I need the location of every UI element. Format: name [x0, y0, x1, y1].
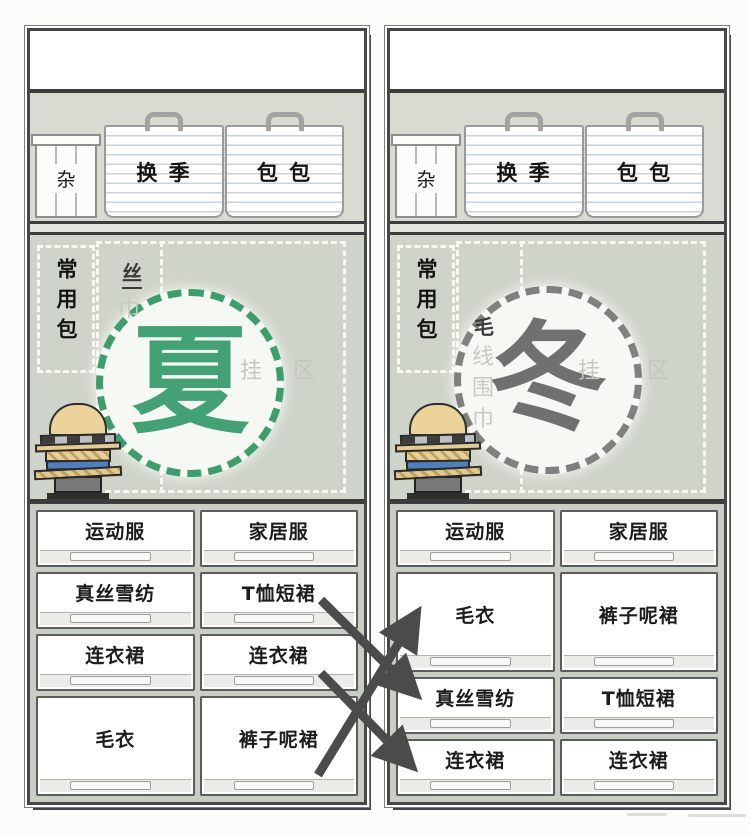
box-label: 杂 [54, 164, 77, 193]
drawer-label: 连衣裙 [445, 746, 505, 773]
drawer: 裤子呢裙 [200, 696, 359, 796]
drawer: 真丝雪纺 [396, 677, 555, 734]
top-compartment [30, 31, 364, 93]
box-lid-icon [31, 134, 101, 146]
drawer-handle [234, 552, 314, 561]
bags-zone: 常用包 [37, 245, 95, 373]
drawer-label: T恤短裙 [602, 684, 676, 711]
drawer: 连衣裙 [560, 739, 719, 796]
box-handle-icon [266, 112, 304, 131]
drawer: T恤短裙 [560, 677, 719, 734]
hat-stack [393, 403, 483, 499]
drawer-handle [594, 719, 674, 728]
drawer-handle [70, 781, 150, 790]
shelf-plank [390, 221, 724, 235]
box-label: 换 季 [496, 157, 551, 187]
storage-box: 包 包 [225, 125, 344, 218]
drawer-label: 运动服 [85, 517, 145, 544]
drawer: 家居服 [200, 510, 359, 567]
drawer-label: 裤子呢裙 [239, 725, 319, 752]
drawer-handle [430, 781, 510, 790]
scarf-zone-label-top: 丝 [122, 257, 142, 289]
scarf-zone-char: 巾 [118, 299, 140, 321]
drawer-handle [594, 781, 674, 790]
drawer-handle [234, 614, 314, 623]
hat-stack [33, 403, 123, 499]
drawer-handle [430, 552, 510, 561]
drawer-row: 运动服家居服 [36, 510, 358, 567]
drawer: 裤子呢裙 [560, 572, 719, 672]
misc-box: 杂 [395, 138, 457, 218]
box-handle-icon [626, 112, 664, 131]
drawer: 毛衣 [396, 572, 555, 672]
hanging-zone-label: 挂 区 [578, 353, 689, 385]
drawer-row: 运动服家居服 [396, 510, 718, 567]
drawer-label: 连衣裙 [609, 746, 669, 773]
storage-box: 包 包 [585, 125, 704, 218]
storage-box: 换 季 [104, 125, 224, 218]
bags-zone-label: 常用包 [411, 258, 441, 370]
drawer-label: 连衣裙 [249, 641, 309, 668]
drawer-label: 毛衣 [95, 725, 135, 752]
drawer-handle [70, 552, 150, 561]
drawer-row: 真丝雪纺T恤短裙 [36, 572, 358, 629]
box-label: 杂 [414, 164, 437, 193]
box-label: 包 包 [617, 157, 672, 187]
drawer-label: 真丝雪纺 [75, 579, 155, 606]
scarf-zone-label-top: 毛 [474, 311, 494, 340]
drawer: 家居服 [560, 510, 719, 567]
drawer-label: 裤子呢裙 [599, 601, 679, 628]
scarf-zone-char: 线 [472, 347, 494, 369]
drawer-section: 运动服家居服真丝雪纺T恤短裙连衣裙连衣裙毛衣裤子呢裙 [30, 499, 364, 802]
drawer-label: 家居服 [249, 517, 309, 544]
hanging-area: 常用包 丝 巾 挂 区 夏 [30, 235, 364, 499]
drawer-section: 运动服家居服毛衣裤子呢裙真丝雪纺T恤短裙连衣裙连衣裙 [390, 499, 724, 802]
drawer-handle [594, 657, 674, 666]
drawer-handle [234, 781, 314, 790]
box-label: 换 季 [136, 157, 191, 187]
watermark-dash [627, 813, 667, 816]
hat-foot-icon [407, 493, 469, 499]
hat-dome-icon [49, 403, 107, 436]
drawer-row: 毛衣裤子呢裙 [396, 572, 718, 672]
drawer-label: T恤短裙 [242, 579, 316, 606]
closet-summer: 杂换 季包 包 常用包 丝 巾 挂 区 夏 运动服家居服真丝雪纺T恤短裙连衣裙连… [27, 28, 367, 805]
shelf-plank [30, 221, 364, 235]
bags-zone: 常用包 [397, 245, 455, 373]
drawer-label: 运动服 [445, 517, 505, 544]
season-char-summer: 夏 [131, 322, 249, 440]
drawer: 毛衣 [36, 696, 195, 796]
drawer-row: 毛衣裤子呢裙 [36, 696, 358, 796]
drawer-handle [234, 676, 314, 685]
drawer: 真丝雪纺 [36, 572, 195, 629]
drawer-label: 连衣裙 [85, 641, 145, 668]
hanging-area: 常用包 毛 线围巾 挂 区 冬 [390, 235, 724, 499]
scarf-zone-char: 围 [472, 378, 494, 400]
drawer-row: 连衣裙连衣裙 [36, 634, 358, 691]
box-lid-icon [391, 134, 461, 146]
drawer-row: 真丝雪纺T恤短裙 [396, 677, 718, 734]
hat-foot-icon [47, 493, 109, 499]
misc-box: 杂 [35, 138, 97, 218]
bags-zone-label: 常用包 [51, 258, 81, 370]
hat-dome-icon [409, 403, 467, 436]
top-compartment [390, 31, 724, 93]
drawer-label: 真丝雪纺 [435, 684, 515, 711]
storage-box: 换 季 [464, 125, 584, 218]
drawer-handle [70, 614, 150, 623]
box-handle-icon [505, 112, 543, 131]
drawer-label: 家居服 [609, 517, 669, 544]
drawer: T恤短裙 [200, 572, 359, 629]
drawer-handle [70, 676, 150, 685]
drawer-label: 毛衣 [455, 601, 495, 628]
drawer-row: 连衣裙连衣裙 [396, 739, 718, 796]
drawer: 运动服 [396, 510, 555, 567]
hanging-zone-label: 挂 区 [240, 353, 327, 385]
drawer: 运动服 [36, 510, 195, 567]
scarf-zone-label-rest: 巾 [118, 299, 140, 321]
watermark-dash [688, 814, 746, 817]
box-shelf: 杂换 季包 包 [390, 93, 724, 221]
closet-winter: 杂换 季包 包 常用包 毛 线围巾 挂 区 冬 运动服家居服毛衣裤子呢裙真丝雪纺… [387, 28, 727, 805]
drawer: 连衣裙 [200, 634, 359, 691]
drawer-handle [430, 719, 510, 728]
box-label: 包 包 [257, 157, 312, 187]
drawer-handle [594, 552, 674, 561]
drawer: 连衣裙 [396, 739, 555, 796]
drawer: 连衣裙 [36, 634, 195, 691]
drawer-handle [430, 657, 510, 666]
box-handle-icon [145, 112, 183, 131]
box-shelf: 杂换 季包 包 [30, 93, 364, 221]
